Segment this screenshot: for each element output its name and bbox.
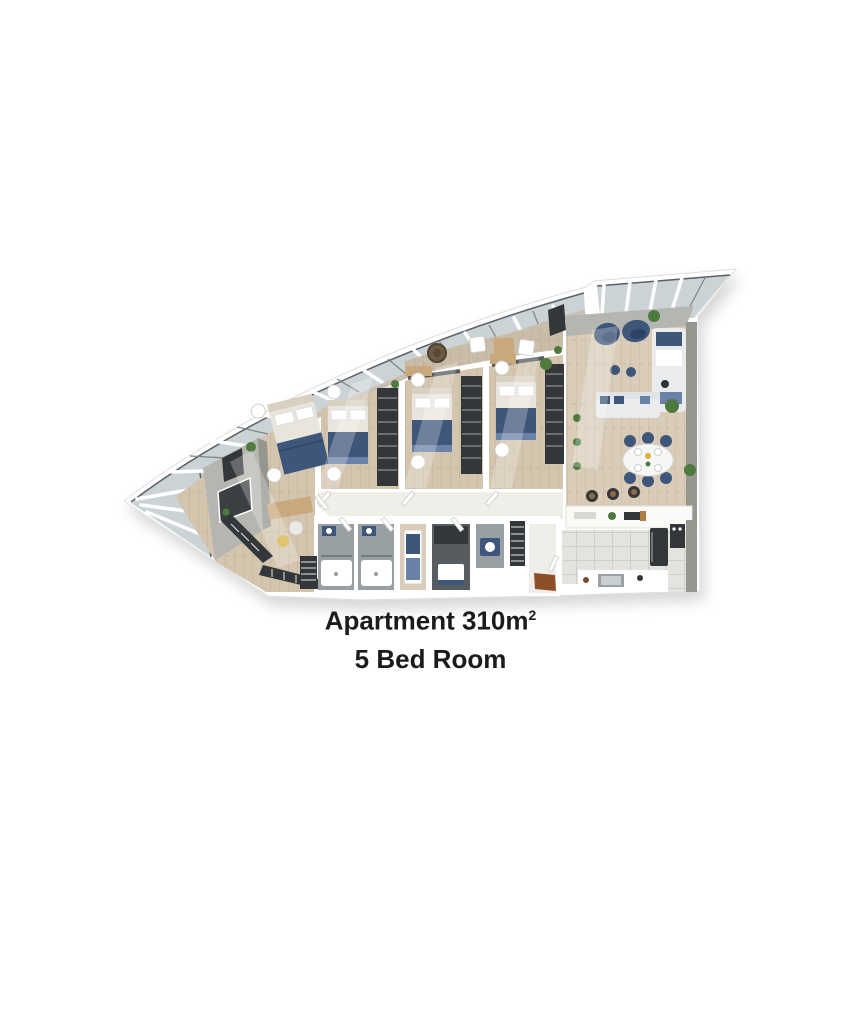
- caption: Apartment 310m2 5 Bed Room: [4, 600, 853, 674]
- hall-wardrobe: [510, 521, 525, 566]
- entrance-mat: [534, 573, 556, 591]
- floor-plan-render: [0, 0, 853, 1024]
- dining-table-icon: [623, 444, 673, 476]
- chair-icon: [469, 336, 486, 353]
- wardrobe-icon: [377, 388, 398, 486]
- corridor-floor: [318, 492, 563, 519]
- entrance-hall: [529, 524, 556, 593]
- plant-icon: [540, 358, 552, 370]
- plant-icon: [391, 380, 399, 388]
- oven-icon: [670, 524, 685, 548]
- page: Apartment 310m2 5 Bed Room: [0, 0, 853, 1024]
- plant-icon: [684, 464, 696, 476]
- plant-icon: [554, 346, 562, 354]
- bed-icon: [406, 534, 420, 554]
- floor-lamp-icon: [661, 380, 669, 388]
- plant-icon: [246, 442, 256, 452]
- desk-chair-icon: [289, 521, 303, 535]
- dining-set: [623, 432, 673, 487]
- fridge-icon: [650, 528, 668, 566]
- wardrobe-icon: [545, 364, 564, 464]
- pouf-icon: [626, 367, 636, 377]
- plant-icon: [648, 310, 660, 322]
- bedroom-5: [400, 524, 426, 590]
- bedroom-count-subtitle: 5 Bed Room: [4, 644, 853, 674]
- plant-icon: [665, 399, 679, 413]
- bathroom-1: [318, 524, 354, 590]
- bathroom-2: [358, 524, 394, 590]
- apartment-area-title: Apartment 310m2: [4, 600, 853, 636]
- wardrobe-icon: [461, 376, 482, 474]
- wc: [476, 524, 504, 568]
- table-icon: [493, 337, 514, 356]
- bathroom-3: [432, 524, 470, 590]
